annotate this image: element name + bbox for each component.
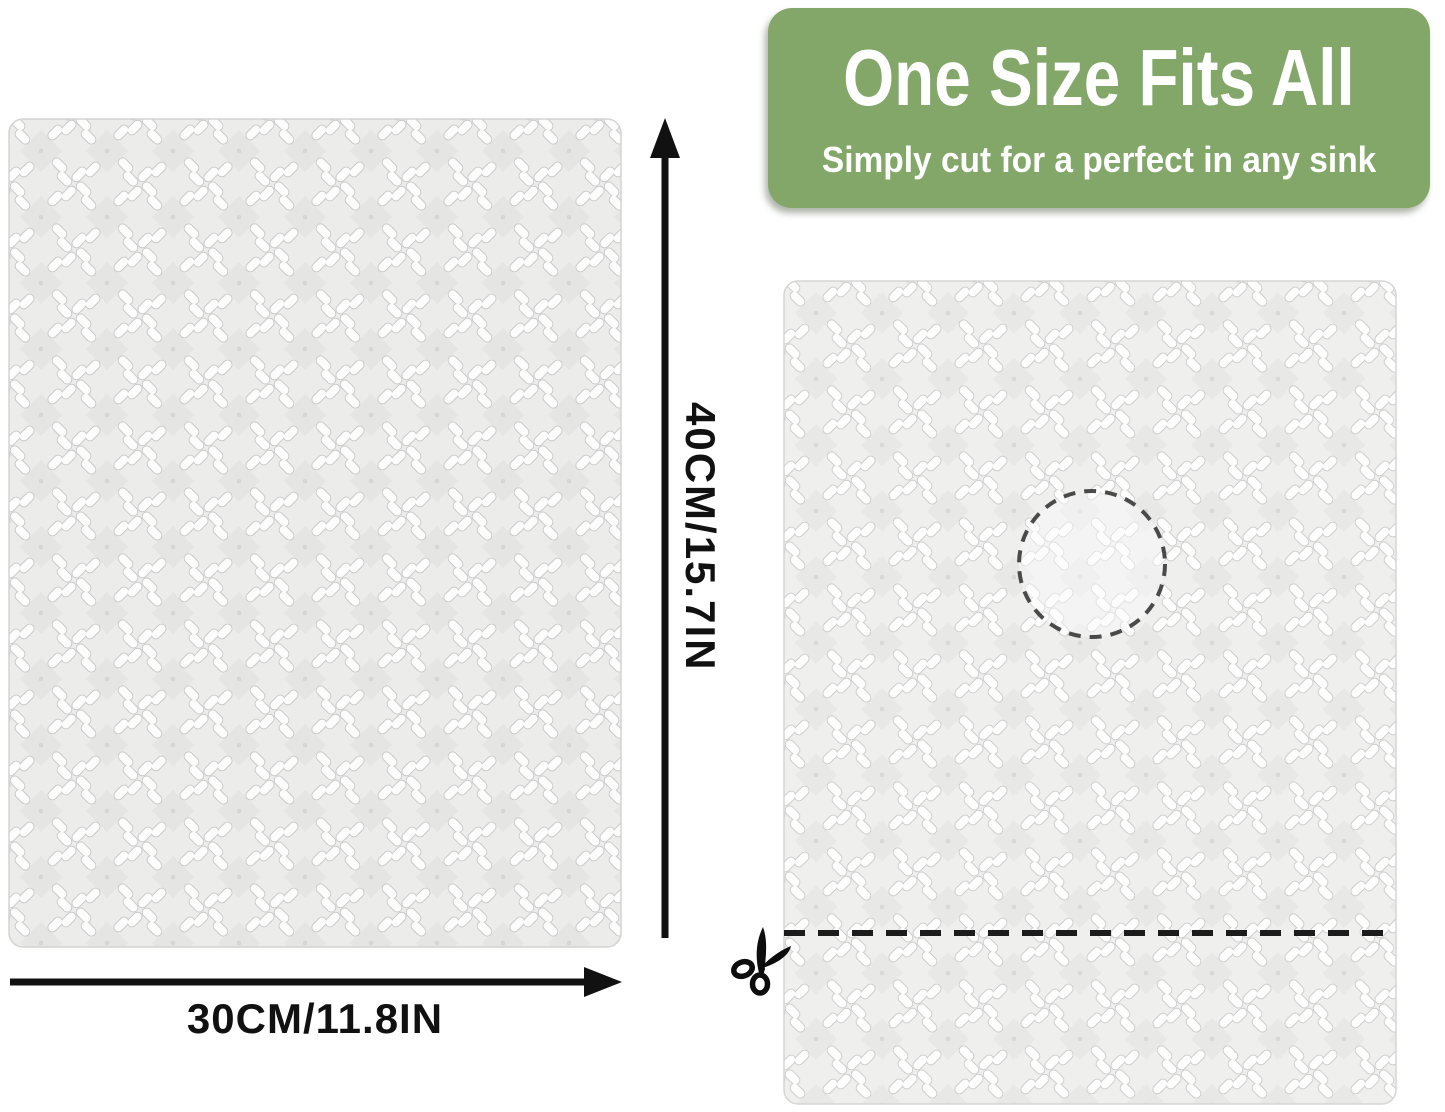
left-mat-surface bbox=[9, 119, 621, 947]
right-mat-surface bbox=[784, 281, 1396, 1104]
left-sink-mat bbox=[8, 118, 622, 948]
height-dimension-label: 40CM/15.7IN bbox=[677, 402, 723, 671]
banner: One Size Fits All Simply cut for a perfe… bbox=[768, 8, 1430, 208]
scissors-icon bbox=[705, 915, 800, 1010]
right-sink-mat bbox=[783, 280, 1397, 1105]
drain-cutout-dashed-circle bbox=[1019, 491, 1165, 637]
banner-title: One Size Fits All bbox=[843, 38, 1355, 118]
product-infographic: 40CM/15.7IN 30CM/11.8IN One Size Fits Al… bbox=[0, 0, 1445, 1112]
banner-subtitle: Simply cut for a perfect in any sink bbox=[822, 142, 1376, 178]
width-dimension-label: 30CM/11.8IN bbox=[110, 995, 520, 1043]
